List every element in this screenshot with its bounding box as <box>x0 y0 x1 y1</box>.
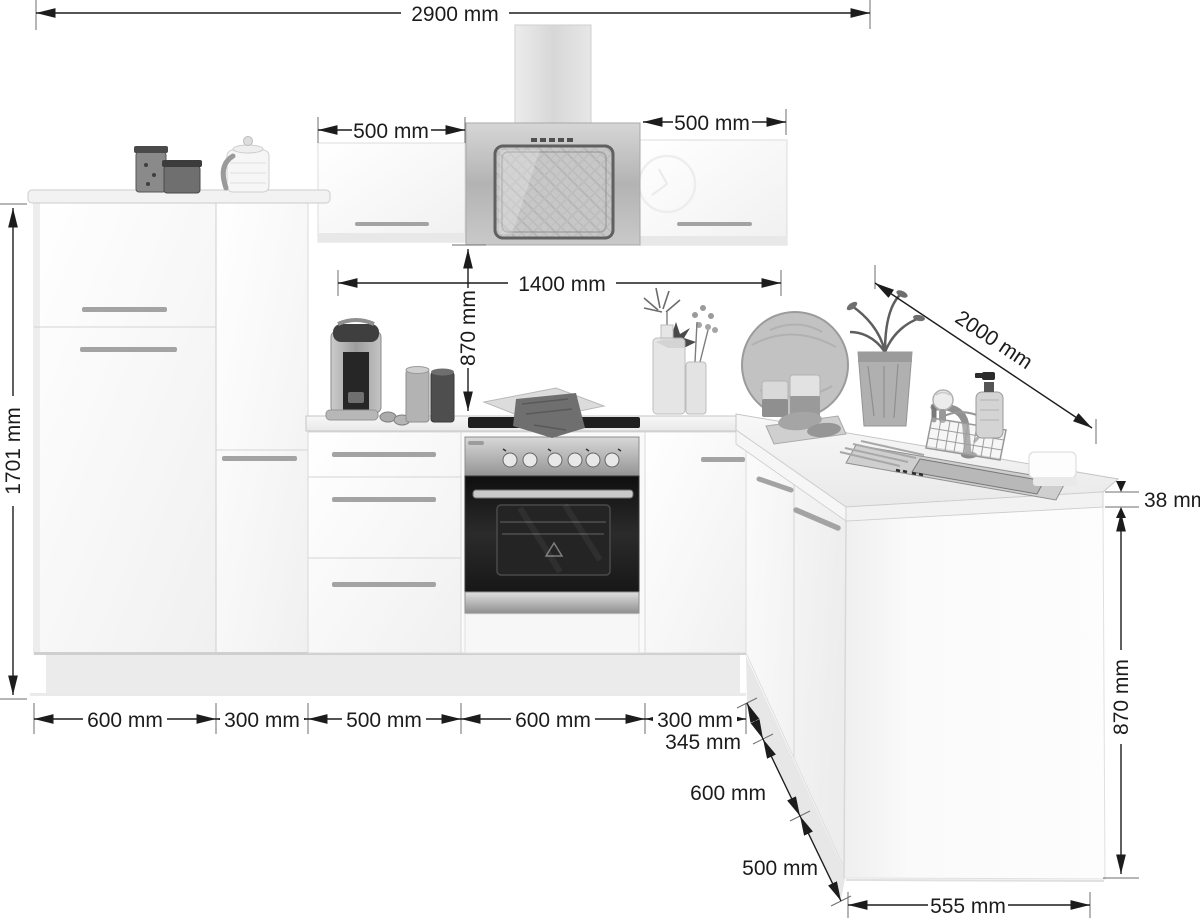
dim-base-run: 600 mm 300 mm 500 mm 600 mm 300 mm <box>34 703 746 734</box>
dim-label-side-run-2: 600 mm <box>690 782 766 805</box>
wall-cabinet-left <box>318 143 465 242</box>
base-unit-300 <box>645 432 746 653</box>
drawer-handle <box>332 452 436 457</box>
cabinet-handle <box>701 457 745 462</box>
range-hood <box>466 123 640 245</box>
drawer-handle <box>332 497 436 502</box>
dim-overall-width: 2900 mm <box>36 0 870 30</box>
dim-label-base-run-5: 300 mm <box>657 709 733 732</box>
oven-brand-mark <box>468 441 484 445</box>
dim-label-worktop-to-wall-unit: 870 mm <box>457 290 480 366</box>
end-panel <box>844 507 1105 881</box>
dim-end-panel-width: 555 mm <box>848 892 1090 918</box>
dim-label-worktop-thickness: 38 mm <box>1144 489 1200 512</box>
cabinet-handle <box>222 456 297 461</box>
dim-label-wall-unit-span: 1400 mm <box>518 273 606 296</box>
canisters <box>406 367 454 423</box>
drawer-handle <box>332 582 436 587</box>
oven-unit-600 <box>461 432 645 653</box>
dim-label-wall-cabinet-left: 500 mm <box>353 120 429 143</box>
dim-label-base-run-3: 500 mm <box>346 709 422 732</box>
oven-door-handle <box>473 490 633 498</box>
base-drawer-unit-500 <box>308 432 461 653</box>
cabinet-handle <box>677 222 752 226</box>
kitchen-illustration <box>28 25 1118 900</box>
cabinet-handle <box>82 307 167 312</box>
cups <box>762 375 820 417</box>
dim-label-side-run-3: 500 mm <box>742 857 818 880</box>
kitchen-dimension-diagram: 2900 mm 500 mm 500 mm 1400 mm <box>0 0 1200 920</box>
wall-cabinet-right <box>639 140 787 245</box>
vases-with-flowers <box>644 288 718 414</box>
dim-tall-unit-height: 1701 mm <box>0 204 27 699</box>
coffee-machine <box>326 320 410 425</box>
coffee-pot <box>223 137 269 193</box>
range-hood-chimney <box>515 25 591 123</box>
soap-dispenser <box>975 372 1003 438</box>
sponge-tray <box>1029 452 1077 486</box>
dim-label-base-unit-height: 870 mm <box>1110 659 1133 735</box>
dim-worktop-thickness: 38 mm <box>1105 481 1200 518</box>
plinth <box>46 655 740 693</box>
tall-cabinet-300 <box>216 200 308 653</box>
dim-label-base-run-2: 300 mm <box>224 709 300 732</box>
dim-label-end-panel-width: 555 mm <box>930 895 1006 918</box>
dim-label-base-run-4: 600 mm <box>515 709 591 732</box>
storage-jars <box>134 146 202 193</box>
dim-worktop-to-wall-unit: 870 mm <box>452 245 486 411</box>
cabinet-handle <box>355 222 429 226</box>
dim-wall-cabinet-right: 500 mm <box>643 109 786 135</box>
dim-base-unit-height: 870 mm <box>1103 512 1139 878</box>
dim-label-tall-unit-height: 1701 mm <box>2 407 25 495</box>
dim-wall-unit-span: 1400 mm <box>338 270 781 296</box>
diagram-canvas: 2900 mm 500 mm 500 mm 1400 mm <box>0 0 1200 920</box>
dim-label-side-run-depth: 2000 mm <box>951 306 1037 374</box>
dim-label-wall-cabinet-right: 500 mm <box>674 112 750 135</box>
dim-label-overall-width: 2900 mm <box>411 3 499 26</box>
dim-label-base-run-1: 600 mm <box>87 709 163 732</box>
tall-cabinet-600 <box>34 200 216 653</box>
dim-label-side-run-1: 345 mm <box>665 731 741 754</box>
floor-shadow <box>30 693 746 696</box>
dim-wall-cabinet-left: 500 mm <box>318 117 465 143</box>
cabinet-handle <box>80 347 177 352</box>
